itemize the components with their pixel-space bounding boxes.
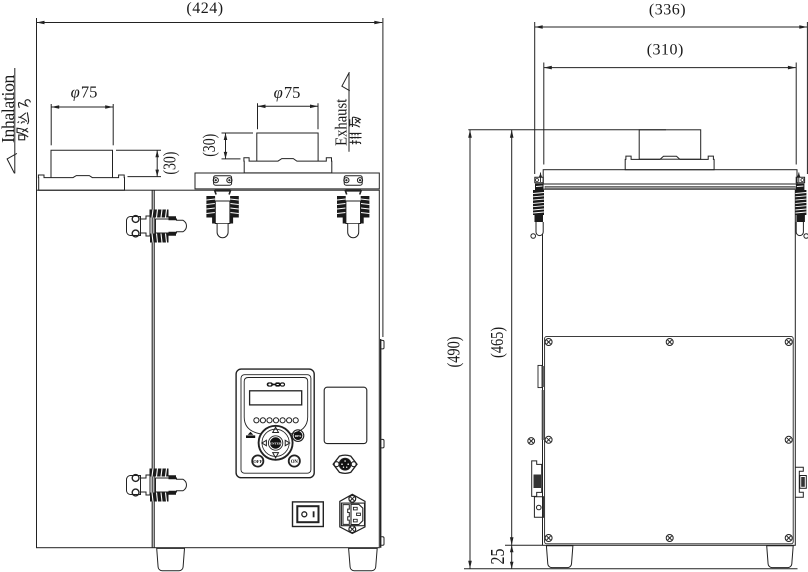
- svg-text:φ75: φ75: [274, 83, 301, 102]
- svg-text:OFF: OFF: [253, 459, 262, 464]
- svg-text:RES: RES: [295, 434, 302, 438]
- svg-text:(30): (30): [200, 134, 219, 157]
- svg-text:φ75: φ75: [71, 83, 98, 102]
- svg-text:Exhaust: Exhaust: [333, 98, 351, 146]
- svg-text:ENTER: ENTER: [270, 442, 282, 446]
- svg-text:(424): (424): [186, 0, 223, 17]
- svg-text:ON: ON: [291, 460, 299, 465]
- svg-text:(30): (30): [161, 152, 180, 175]
- svg-text:(310): (310): [647, 42, 684, 59]
- svg-text:(336): (336): [649, 1, 686, 18]
- svg-text:25: 25: [486, 549, 508, 565]
- svg-text:(490): (490): [443, 336, 464, 367]
- svg-text:(465): (465): [486, 327, 507, 358]
